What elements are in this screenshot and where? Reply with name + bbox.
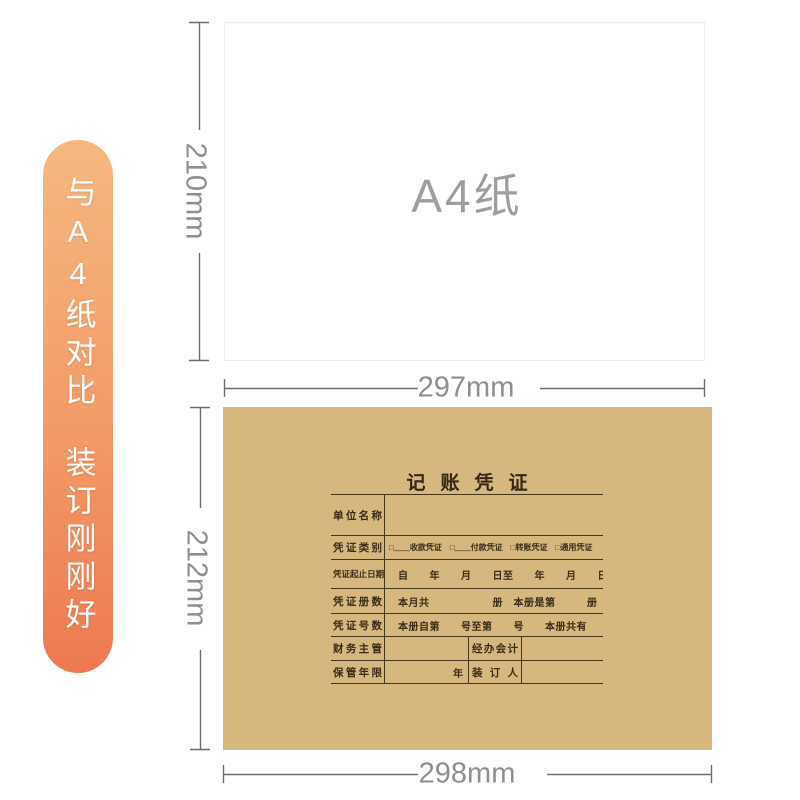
promo-ribbon: 与A4纸对比 装订刚刚好 [43,140,113,673]
row-blank-cell [385,637,468,660]
voucher-title: 记账凭证 [331,468,603,495]
row-label: 凭证类别 [331,536,385,559]
table-row-unit-name: 单位名称 [331,495,603,536]
row-blank-cell [522,637,603,660]
row-content: □____收款凭证 □____付款凭证 □转账凭证 □通用凭证 [385,536,603,559]
row-label: 凭证号数 [331,614,385,636]
ribbon-text-binding: 装订刚刚好 [56,446,101,636]
row-content: 本月共 册 本册是第 册 [385,589,603,613]
row-label: 单位名称 [331,495,385,535]
row-label: 凭证册数 [331,589,385,613]
row-content [385,495,603,535]
row-blank-cell [522,661,603,683]
row-label: 凭证起止日期 [331,560,385,588]
table-row-retention-period: 保管年限 年 装订人 [331,661,603,684]
row-content: 本册自第 号至第 号 本册共有 号 [385,614,603,636]
table-row-voucher-numbers: 凭证号数 本册自第 号至第 号 本册共有 号 [331,614,603,637]
table-row-book-count: 凭证册数 本月共 册 本册是第 册 [331,589,603,614]
table-row-voucher-type: 凭证类别 □____收款凭证 □____付款凭证 □转账凭证 □通用凭证 [331,536,603,560]
voucher-height-dimension: 212mm [180,530,213,627]
voucher-cover: 记账凭证 单位名称 凭证类别 □____收款凭证 □____付款凭证 □转账凭证… [223,407,712,750]
row-second-label: 经办会计 [468,637,522,660]
row-unit-cell: 年 [385,661,468,683]
product-comparison-image: 与A4纸对比 装订刚刚好 [0,0,800,800]
row-label: 保管年限 [331,661,385,683]
voucher-width-dimension: 298mm [419,758,516,791]
row-label: 财务主管 [331,637,385,660]
ribbon-text-compare: 与A4纸对比 [56,176,101,412]
table-row-date-range: 凭证起止日期 自 年 月 日至 年 月 日 [331,560,603,589]
row-content: 自 年 月 日至 年 月 日 [385,560,603,588]
a4-sheet-label: A4纸 [411,160,522,226]
table-row-finance-supervisor: 财务主管 经办会计 [331,637,603,661]
a4-width-dimension: 297mm [418,372,515,405]
voucher-form-table: 单位名称 凭证类别 □____收款凭证 □____付款凭证 □转账凭证 □通用凭… [331,494,603,684]
row-second-label: 装订人 [468,661,522,683]
a4-height-dimension: 210mm [179,143,212,240]
